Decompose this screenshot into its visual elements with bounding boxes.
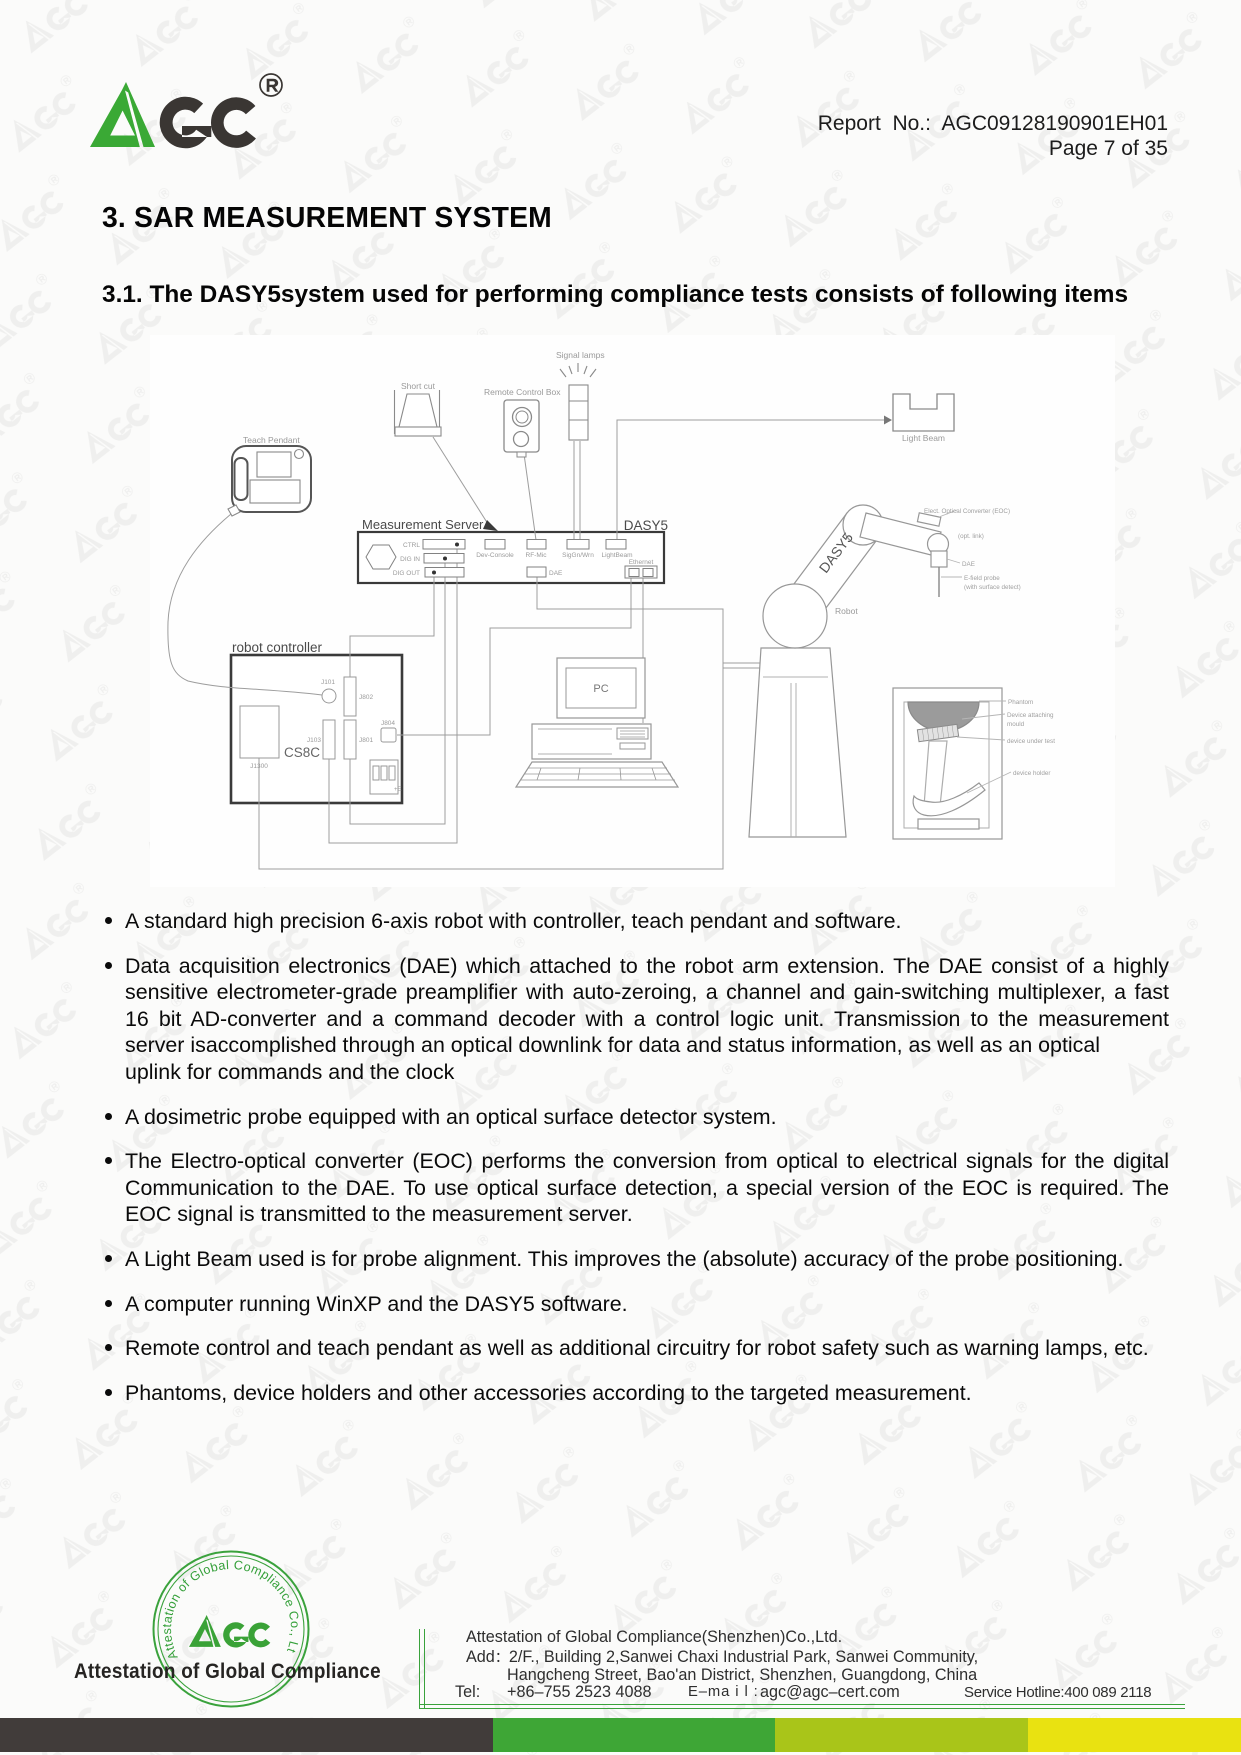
svg-text:LightBeam: LightBeam xyxy=(601,552,632,559)
svg-text:Remote Control Box: Remote Control Box xyxy=(484,387,561,397)
svg-text:DIG OUT: DIG OUT xyxy=(393,570,420,577)
svg-text:DASY5: DASY5 xyxy=(624,518,668,533)
svg-text:DAE: DAE xyxy=(549,570,563,577)
svg-text:J1300: J1300 xyxy=(250,763,268,770)
svg-text:RF-Mic: RF-Mic xyxy=(526,552,548,559)
svg-text:J801: J801 xyxy=(359,737,373,744)
svg-text:CS8C: CS8C xyxy=(284,745,320,760)
svg-text:+E: +E xyxy=(394,787,402,793)
svg-text:E-field probe: E-field probe xyxy=(964,575,1000,582)
svg-text:DIG IN: DIG IN xyxy=(400,556,420,563)
svg-text:(with surface detect): (with surface detect) xyxy=(964,584,1021,591)
svg-text:Ethernet: Ethernet xyxy=(629,559,654,566)
svg-text:(opt. link): (opt. link) xyxy=(958,533,984,540)
svg-text:Device attaching: Device attaching xyxy=(1007,712,1054,719)
svg-text:Phantom: Phantom xyxy=(1008,699,1033,706)
svg-text:PC: PC xyxy=(593,683,608,695)
svg-text:mould: mould xyxy=(1007,721,1025,728)
svg-text:Robot: Robot xyxy=(835,606,858,616)
svg-text:device holder: device holder xyxy=(1013,770,1050,777)
svg-text:SigGn/Wrn: SigGn/Wrn xyxy=(562,552,594,559)
svg-text:J101: J101 xyxy=(321,679,335,686)
svg-text:Short cut: Short cut xyxy=(401,381,436,391)
svg-text:DAE: DAE xyxy=(962,561,975,568)
svg-text:CTRL: CTRL xyxy=(403,542,420,549)
svg-text:J804: J804 xyxy=(381,720,395,727)
svg-text:J103: J103 xyxy=(307,737,321,744)
svg-text:robot controller: robot controller xyxy=(232,640,323,655)
svg-text:J802: J802 xyxy=(359,694,373,701)
svg-text:Signal lamps: Signal lamps xyxy=(556,350,605,360)
svg-text:Dev-Console: Dev-Console xyxy=(476,552,514,559)
svg-text:Teach Pendant: Teach Pendant xyxy=(243,435,300,445)
svg-text:Light Beam: Light Beam xyxy=(902,433,945,443)
svg-text:device under test: device under test xyxy=(1007,738,1055,745)
svg-text:Measurement Server: Measurement Server xyxy=(362,517,484,532)
svg-text:Elect. Optical Converter (EOC): Elect. Optical Converter (EOC) xyxy=(924,508,1010,515)
